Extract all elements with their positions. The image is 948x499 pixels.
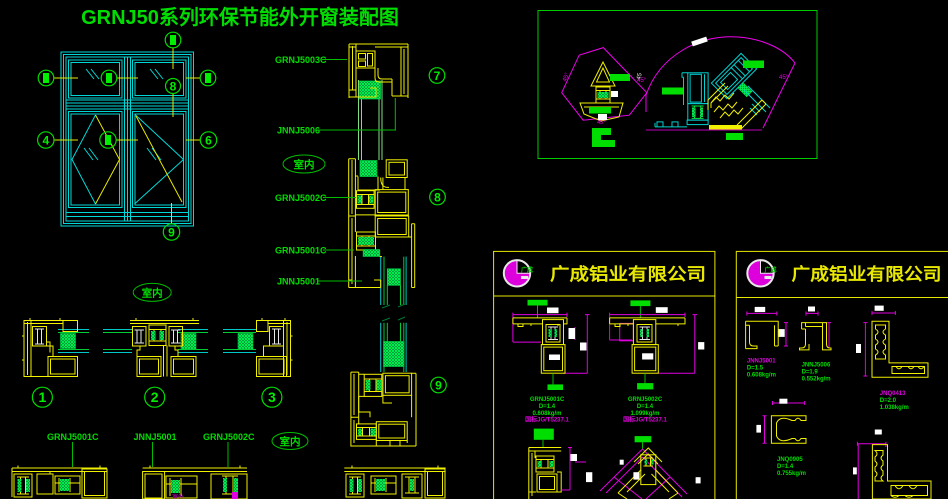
svg-text:GRNJ5002C: GRNJ5002C — [203, 432, 255, 442]
svg-text:D=1.4: D=1.4 — [777, 464, 794, 470]
svg-text:45°: 45° — [779, 75, 789, 81]
svg-text:D=2.0: D=2.0 — [880, 398, 897, 404]
svg-text:0.552kg/m: 0.552kg/m — [802, 377, 831, 383]
svg-text:D=1.5: D=1.5 — [747, 366, 764, 372]
svg-text:45°: 45° — [597, 120, 605, 126]
svg-text:2: 2 — [151, 389, 159, 405]
svg-text:广成: 广成 — [765, 266, 777, 274]
svg-text:8: 8 — [434, 191, 441, 205]
svg-text:JNNJ5001: JNNJ5001 — [277, 277, 320, 287]
svg-text:室内: 室内 — [142, 286, 163, 299]
svg-text:JNNJ5001: JNNJ5001 — [134, 432, 177, 442]
svg-text:0.755kg/m: 0.755kg/m — [777, 471, 806, 477]
svg-text:广成: 广成 — [521, 266, 533, 274]
svg-text:1: 1 — [39, 389, 47, 405]
svg-text:0.608kg/m: 0.608kg/m — [747, 373, 776, 379]
svg-text:JNNJ5006: JNNJ5006 — [802, 363, 831, 369]
svg-text:GRNJ50系列环保节能外开窗装配图: GRNJ50系列环保节能外开窗装配图 — [81, 5, 399, 29]
svg-text:D=1.9: D=1.9 — [802, 370, 819, 376]
svg-text:室内: 室内 — [294, 158, 315, 171]
svg-text:JNQ0413: JNQ0413 — [880, 391, 906, 397]
svg-text:1.038kg/m: 1.038kg/m — [880, 405, 909, 411]
svg-text:GRNJ5002C: GRNJ5002C — [628, 397, 663, 403]
svg-text:D=1.4: D=1.4 — [637, 404, 654, 410]
svg-text:GRNJ5001C: GRNJ5001C — [275, 246, 327, 256]
svg-text:0.608kg/m: 0.608kg/m — [532, 411, 561, 417]
svg-text:4: 4 — [42, 134, 49, 148]
svg-text:3: 3 — [268, 389, 276, 405]
svg-text:9: 9 — [435, 379, 442, 393]
svg-text:广成铝业有限公司: 广成铝业有限公司 — [792, 264, 942, 284]
svg-text:8: 8 — [170, 80, 177, 94]
svg-text:广成铝业有限公司: 广成铝业有限公司 — [550, 264, 706, 284]
svg-text:JNNJ5001: JNNJ5001 — [747, 359, 776, 365]
svg-text:D=1.4: D=1.4 — [539, 404, 556, 410]
svg-text:JNNJ5006: JNNJ5006 — [277, 126, 320, 136]
svg-text:6: 6 — [205, 134, 212, 148]
svg-text:9: 9 — [168, 226, 175, 240]
svg-text:GRNJ5001C: GRNJ5001C — [530, 397, 565, 403]
svg-text:国标JG/T5237.1: 国标JG/T5237.1 — [525, 416, 569, 424]
svg-text:室内: 室内 — [280, 435, 301, 448]
svg-text:JNQ0905: JNQ0905 — [777, 457, 803, 463]
svg-text:GRNJ5002C: GRNJ5002C — [275, 193, 327, 203]
svg-text:7: 7 — [434, 69, 441, 83]
svg-text:1.099kg/m: 1.099kg/m — [630, 411, 659, 417]
svg-text:GRNJ5003C: GRNJ5003C — [275, 55, 327, 65]
svg-text:GRNJ5001C: GRNJ5001C — [47, 432, 99, 442]
svg-text:国标JG/T5237.1: 国标JG/T5237.1 — [623, 416, 667, 424]
